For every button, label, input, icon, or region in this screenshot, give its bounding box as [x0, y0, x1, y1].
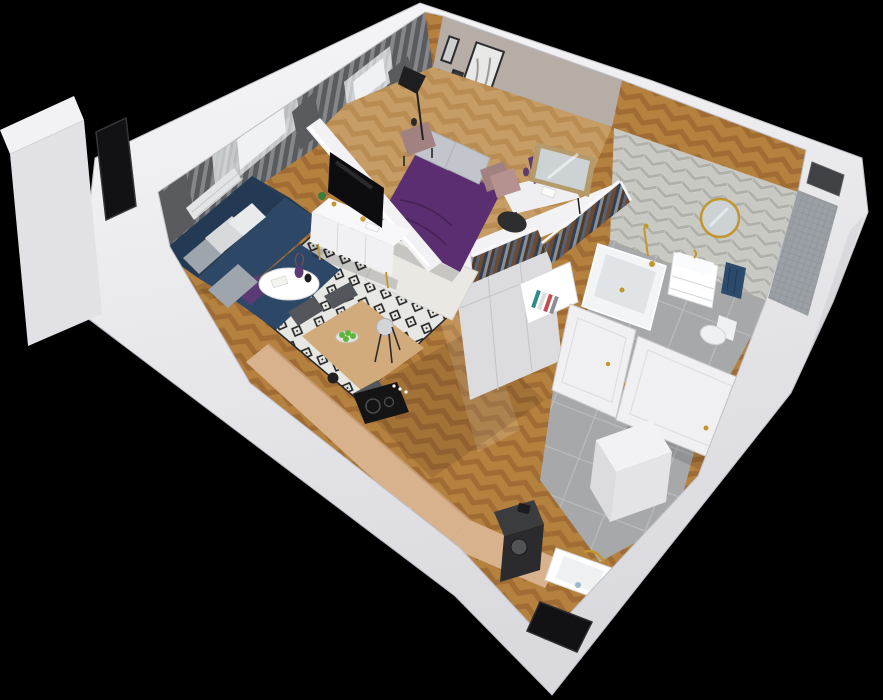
coffee-machine-dial: [511, 539, 527, 555]
tub-drain: [620, 288, 625, 293]
bar-stool-seat: [377, 319, 394, 336]
bathroom-door-handle: [606, 362, 610, 366]
nightstand-vase: [411, 118, 417, 126]
shower-head: [644, 224, 649, 229]
flower-vase: [295, 266, 304, 278]
candle: [360, 216, 366, 222]
sink-drain: [575, 582, 581, 588]
kettle: [328, 373, 339, 384]
apartment-render-canvas: [0, 0, 883, 700]
entrance-door-handle: [704, 426, 709, 431]
desk-vase-1: [523, 168, 529, 177]
floorplan-scene: [0, 0, 883, 700]
houseplant: [318, 192, 326, 200]
console-decor: [332, 202, 337, 207]
small-black-vase: [305, 274, 312, 283]
coffee-table-top: [259, 268, 319, 300]
tub-faucet: [649, 261, 655, 267]
